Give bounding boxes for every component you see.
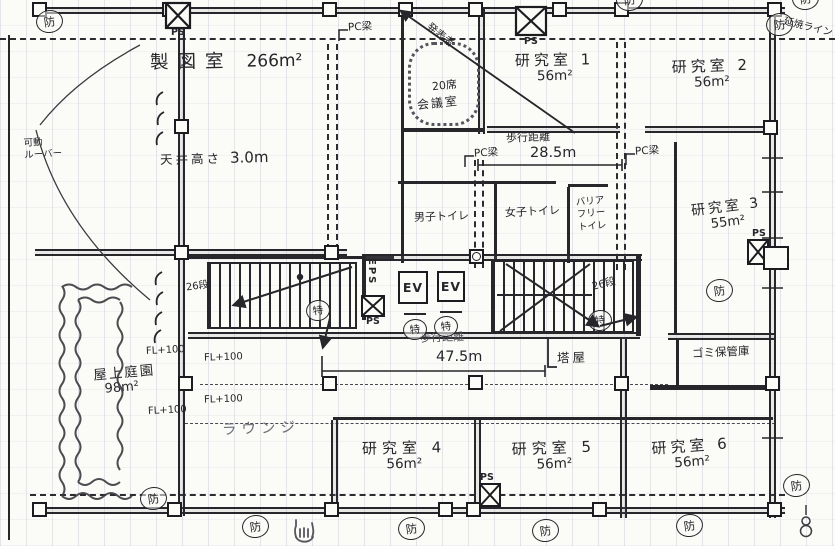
wall-accessible-left — [567, 187, 570, 263]
stair-west — [207, 262, 357, 329]
elevator-1: EV — [398, 271, 428, 304]
column — [322, 2, 337, 17]
room-label-lab6: 研究室 6 56m² — [651, 435, 732, 472]
lab1-name: 研究室 1 — [515, 51, 595, 69]
hand-doodle — [295, 520, 313, 542]
ps-label-core: PS — [366, 317, 380, 328]
dash-wall-drafting-a — [327, 44, 329, 250]
column — [466, 502, 481, 517]
fire-mark-glyph: 防 — [623, 0, 637, 8]
pc-beam-label-2: PC梁 — [474, 147, 499, 160]
column — [398, 2, 413, 17]
wall-lab4-left — [331, 420, 338, 510]
wall-garbage-bottom — [650, 385, 775, 390]
walk-distance-top-value: 28.5m — [530, 145, 576, 161]
floor-level-2: FL+100 — [204, 351, 243, 364]
louver-note-line2: ルーバー — [24, 148, 63, 162]
penthouse-bracket — [548, 337, 557, 367]
room-label-mens-toilet: 男子トイレ — [414, 210, 469, 224]
accessible-line3: トイレ — [578, 219, 607, 234]
eave-line-top — [0, 38, 835, 40]
dash-wall-lab1-b — [624, 42, 626, 270]
lab4-area: 56m² — [362, 456, 447, 473]
room-label-accessible-toilet: バリア フリー トイレ — [575, 195, 607, 234]
column — [767, 502, 782, 517]
louver-note: 可動 ルーバー — [23, 136, 62, 163]
plant-doodle — [801, 505, 812, 537]
lab1-area: 56m² — [515, 68, 595, 84]
wall-toilet-top-1 — [398, 181, 556, 184]
wall-drafting-bottom — [35, 249, 347, 256]
fire-mark-glyph: 防 — [405, 520, 419, 537]
pc-beam-label-3: PC梁 — [635, 145, 660, 158]
fire-mark-glyph: 防 — [249, 518, 263, 535]
fire-shutter-mark: 防 — [782, 472, 812, 499]
column — [174, 245, 189, 260]
wall-lab2-bottom — [645, 126, 773, 133]
floor-level-4: FL+100 — [148, 404, 187, 417]
room-label-drafting: 製図室 266m² — [150, 51, 303, 74]
stair-east — [491, 260, 634, 333]
wall-toilet-top-2 — [568, 184, 608, 187]
column — [614, 376, 629, 391]
fire-mark-glyph: 特 — [312, 302, 324, 318]
ps-label-right: PS — [752, 229, 766, 240]
fire-mark-glyph: 特 — [594, 312, 606, 328]
eps-shaft-label: EPS — [366, 258, 377, 285]
column — [178, 376, 193, 391]
column — [174, 119, 189, 134]
floor-level-3: FL+100 — [204, 393, 243, 406]
fire-mark-glyph: 防 — [790, 477, 804, 494]
drafting-name: 製図室 — [150, 52, 233, 74]
fire-mark-glyph: 防 — [683, 517, 697, 534]
wall-lab3-left — [674, 142, 677, 335]
column — [324, 502, 339, 517]
room-label-womens-toilet: 女子トイレ — [505, 205, 561, 220]
wall-womens-left — [494, 184, 497, 262]
column — [763, 250, 778, 265]
center-axis-line — [200, 384, 668, 385]
fire-mark-glyph: 防 — [713, 282, 727, 299]
lab2-area: 56m² — [672, 73, 752, 91]
dash-wall-lab1-a — [616, 42, 618, 270]
drafting-area: 266m² — [246, 52, 302, 72]
fire-mark-glyph: 防 — [799, 0, 813, 7]
fire-mark-glyph: 特 — [440, 318, 452, 334]
room-label-lab4: 研究室 4 56m² — [362, 439, 447, 472]
pc-beam-label-1: PC梁 — [348, 21, 373, 34]
column-with-post — [469, 249, 484, 264]
ps-label-top-center: PS — [524, 37, 538, 48]
column — [552, 2, 567, 17]
wall-lab6-west — [620, 338, 627, 518]
room-label-lab5: 研究室 5 56m² — [511, 439, 596, 474]
column — [167, 502, 182, 517]
wall-meeting-left — [401, 5, 404, 263]
louver-leader-curve — [36, 45, 150, 300]
drafting-ceiling-note: 天井高さ 3.0m — [160, 149, 269, 168]
wall-left — [178, 8, 185, 516]
wall-garbage-stub — [676, 340, 679, 387]
column — [468, 2, 483, 17]
wall-right-mid — [668, 333, 775, 340]
walk-distance-top-label: 歩行距離 — [506, 131, 550, 145]
fire-mark-glyph: 防 — [43, 13, 57, 30]
garden-area: 98m² — [104, 378, 157, 397]
fire-mark-glyph: 特 — [409, 321, 421, 337]
column — [763, 120, 778, 135]
wall-labs-top — [333, 417, 773, 420]
post-circle — [472, 252, 481, 261]
wall-stair-right-east — [636, 256, 641, 336]
fire-shutter-mark: 防 — [241, 513, 271, 540]
lab4-name: 研究室 4 — [362, 439, 447, 457]
ps-label-top-left: PS — [171, 28, 185, 39]
fire-mark-glyph: 防 — [539, 522, 553, 539]
column — [438, 502, 453, 517]
column — [592, 502, 607, 517]
walk-distance-main-value: 47.5m — [436, 349, 482, 365]
ceiling-value: 3.0m — [230, 149, 269, 166]
room-label-lounge: ラウンジ — [222, 420, 301, 439]
column — [162, 2, 177, 17]
fire-shutter-mark: 防 — [531, 517, 561, 544]
room-label-lab1: 研究室 1 56m² — [515, 51, 595, 84]
dimension-line-main — [322, 356, 545, 377]
column — [32, 502, 47, 517]
ps-label-bottom: PS — [480, 473, 494, 484]
room-label-lab2: 研究室 2 56m² — [671, 57, 751, 92]
fire-mark-glyph: 防 — [147, 490, 161, 507]
room-label-penthouse: 塔屋 — [557, 350, 588, 365]
fire-shutter-mark: 防 — [675, 512, 705, 539]
floor-plan: EV EV EPS 製図室 266m² 天井高さ 3.0m 20席 会議室 発表… — [0, 0, 835, 546]
site-line-left — [8, 35, 10, 540]
dash-wall-drafting-b — [336, 44, 338, 250]
lab5-area: 56m² — [512, 455, 597, 473]
fire-shutter-mark: 防 — [791, 0, 821, 12]
column — [322, 376, 337, 391]
meeting-capacity: 20席 — [431, 79, 457, 94]
floor-level-1: FL+100 — [146, 344, 185, 357]
ceiling-label: 天井高さ — [160, 152, 222, 167]
room-label-roof-garden: 屋上庭園 98m² — [93, 363, 157, 398]
elevator-2-label: EV — [441, 279, 461, 294]
louver-hatch-marks — [155, 92, 164, 343]
fire-spread-line-label: 延焼ライン — [782, 16, 833, 39]
stair-east-landing-line — [497, 294, 592, 296]
elevator-2: EV — [437, 271, 465, 302]
room-label-garbage: ゴミ保管庫 — [692, 345, 750, 361]
elevator-door-sills — [404, 312, 462, 314]
wall-meeting-bottom — [403, 128, 483, 132]
fire-shutter-mark: 防 — [705, 277, 735, 304]
column — [468, 375, 483, 390]
elevator-1-label: EV — [403, 280, 423, 295]
wall-lab4-lab5 — [474, 420, 481, 508]
column — [765, 376, 780, 391]
fire-shutter-mark: 防 — [397, 515, 427, 542]
stair-steps-west: 26段 — [185, 279, 209, 293]
column — [324, 245, 339, 260]
